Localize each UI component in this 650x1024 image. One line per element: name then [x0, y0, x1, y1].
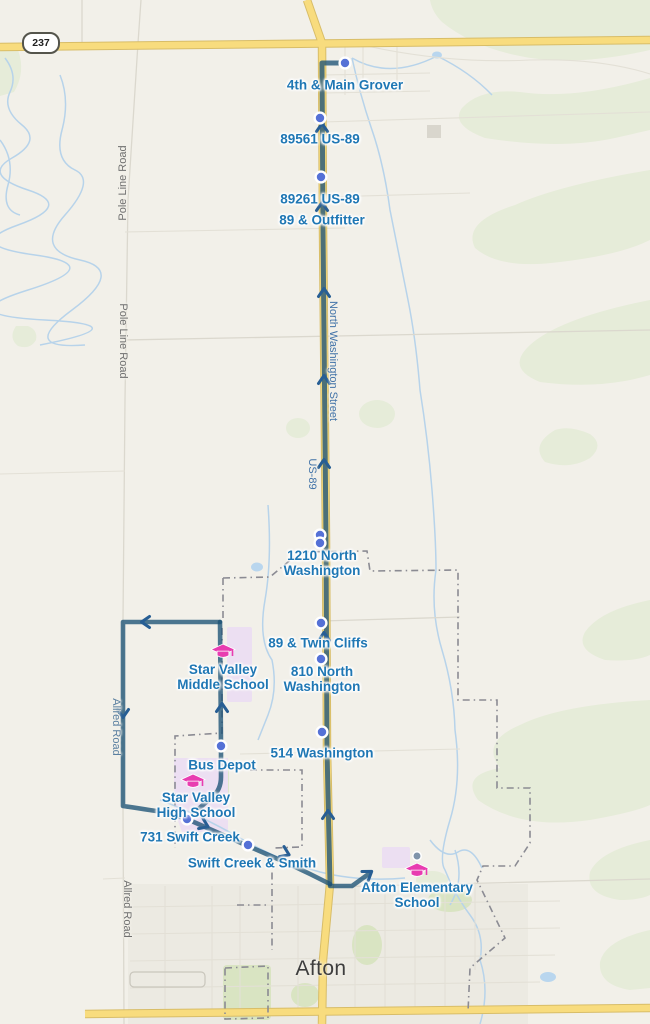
stop-label-89261-us-89: 89261 US-89 [280, 192, 360, 207]
stop-marker-bus-depot[interactable] [216, 741, 227, 752]
stop-label-1210-north-washington: 1210 North Washington [284, 548, 361, 578]
stop-marker-4th-and-main-grover[interactable] [340, 58, 351, 69]
stop-marker-89561-us-89[interactable] [315, 113, 326, 124]
water-layer [0, 52, 556, 1024]
stop-marker-swift-creek-and-smith[interactable] [243, 840, 254, 851]
stop-marker-514-washington[interactable] [317, 727, 328, 738]
road-label-us-89: US-89 [306, 458, 318, 489]
map-canvas[interactable]: 237 Pole Line Road Pole Line Road North … [0, 0, 650, 1024]
stop-label-89-and-twin-cliffs: 89 & Twin Cliffs [268, 636, 368, 651]
map-base-layer [0, 0, 650, 1024]
school-poi-icon [413, 852, 421, 860]
stop-marker-810-north-washington[interactable] [316, 654, 327, 665]
road-label-pole-line-road-2: Pole Line Road [117, 303, 129, 378]
stop-label-731-swift-creek: 731 Swift Creek [140, 830, 240, 845]
school-label-star-valley-high: Star Valley High School [157, 790, 236, 820]
road-label-pole-line-road-1: Pole Line Road [117, 145, 129, 220]
highway-shield-237: 237 [22, 32, 60, 54]
stop-marker-1210-north-washington[interactable] [315, 538, 326, 549]
stop-label-4th-and-main-grover: 4th & Main Grover [287, 78, 403, 93]
stop-label-89561-us-89: 89561 US-89 [280, 132, 360, 147]
stop-label-514-washington: 514 Washington [270, 746, 373, 761]
stop-label-89-and-outfitter: 89 & Outfitter [279, 213, 365, 228]
stop-label-810-north-washington: 810 North Washington [284, 664, 361, 694]
stop-label-bus-depot: Bus Depot [188, 758, 256, 773]
stop-marker-89-and-twin-cliffs[interactable] [316, 618, 327, 629]
town-label-afton: Afton [295, 957, 346, 981]
school-label-afton-elementary: Afton Elementary School [361, 880, 473, 910]
road-label-allred-road-1: Allred Road [110, 698, 122, 755]
road-label-north-washington-street: North Washington Street [327, 301, 339, 421]
stop-marker-89261-us-89[interactable] [316, 172, 327, 183]
road-label-allred-road-2: Allred Road [121, 880, 133, 937]
school-label-star-valley-middle: Star Valley Middle School [177, 662, 269, 692]
stop-label-swift-creek-and-smith: Swift Creek & Smith [188, 856, 316, 871]
